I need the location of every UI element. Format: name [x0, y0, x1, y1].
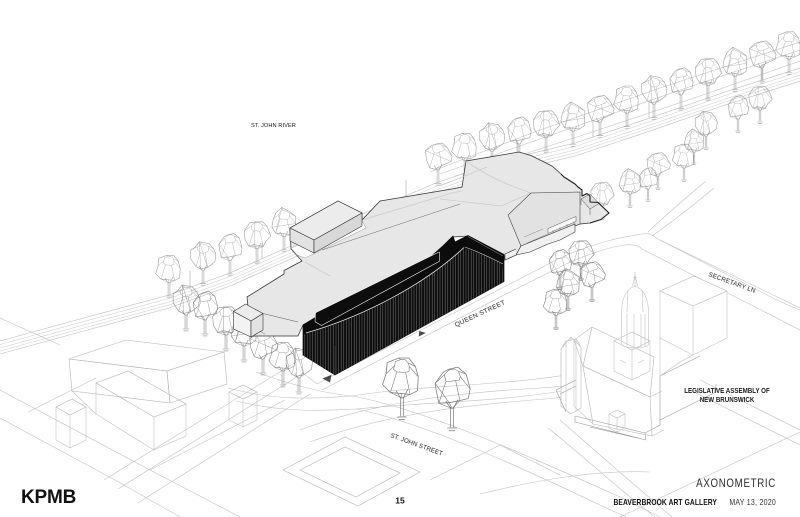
svg-text:NEW BRUNSWICK: NEW BRUNSWICK: [700, 397, 755, 405]
svg-text:15: 15: [395, 496, 405, 506]
svg-text:AXONOMETRIC: AXONOMETRIC: [696, 477, 776, 490]
svg-text:BEAVERBROOK ART GALLERY: BEAVERBROOK ART GALLERY: [613, 497, 717, 507]
svg-text:ST. JOHN RIVER: ST. JOHN RIVER: [251, 123, 296, 129]
svg-text:LEGISLATIVE ASSEMBLY OF: LEGISLATIVE ASSEMBLY OF: [684, 388, 770, 396]
svg-text:KPMB: KPMB: [21, 487, 76, 508]
svg-text:MAY 13, 2020: MAY 13, 2020: [729, 497, 776, 507]
